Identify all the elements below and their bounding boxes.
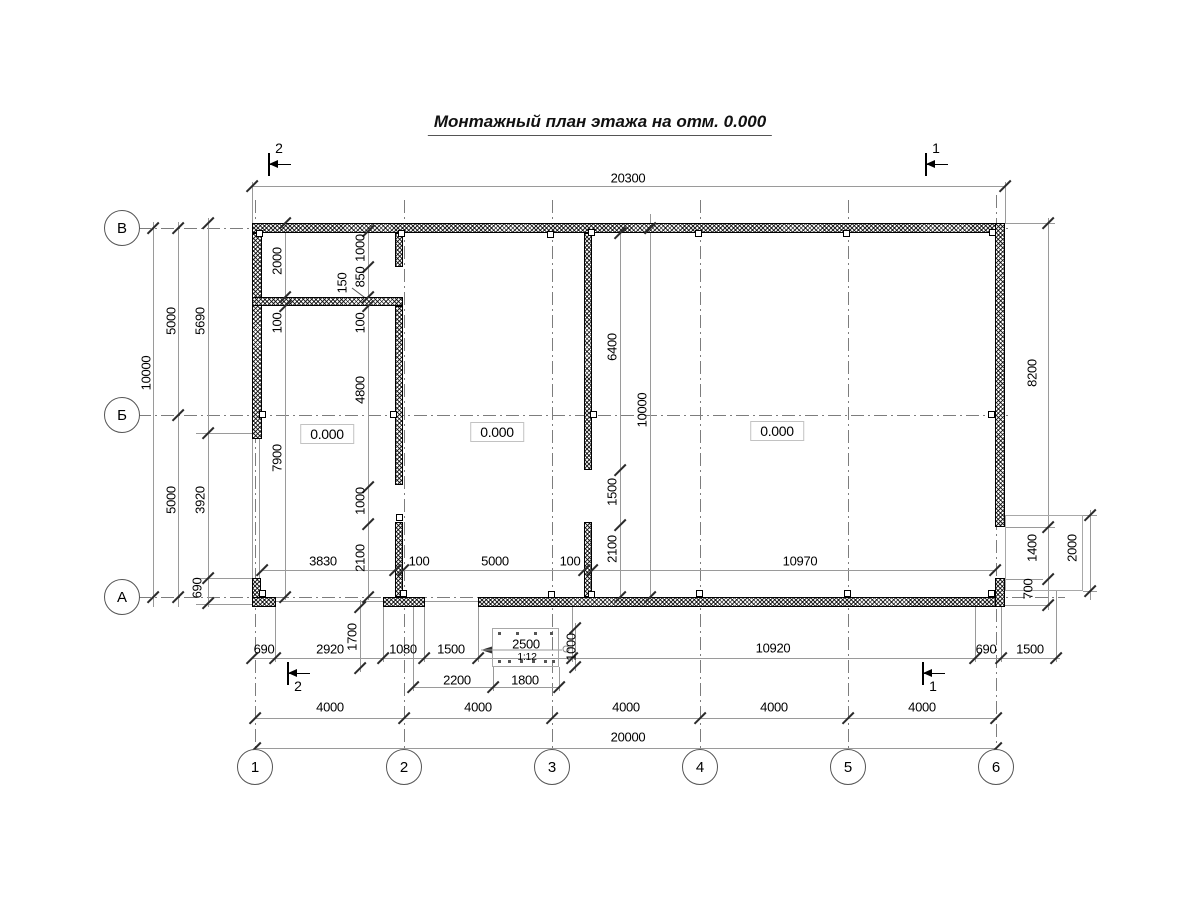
dimension-line: [1005, 182, 1006, 223]
dimension-label: 1000: [565, 633, 578, 661]
ramp-dot: [498, 632, 501, 635]
dimension-line: [1005, 605, 1050, 606]
floor-plan-canvas: Монтажный план этажа на отм. 0.000 20300…: [0, 0, 1200, 900]
ramp-dot: [550, 632, 553, 635]
wall-segment: [478, 597, 1005, 607]
section-marker-label: 1: [929, 678, 937, 694]
dimension-label: 3920: [194, 486, 207, 514]
dimension-label: 1400: [1026, 534, 1039, 562]
dimension-label: 20000: [611, 731, 646, 744]
dimension-line: [620, 223, 621, 600]
dimension-label: 1:12: [517, 652, 536, 663]
dimension-line: [252, 182, 253, 223]
section-marker-arrow: [288, 669, 297, 677]
section-marker-arrow: [923, 669, 932, 677]
dimension-line: [285, 223, 286, 600]
wall-segment: [395, 306, 403, 485]
dimension-label: 2000: [1066, 534, 1079, 562]
dimension-label: 1500: [1016, 643, 1044, 656]
column-marker: [259, 411, 266, 418]
column-marker: [696, 590, 703, 597]
column-marker: [988, 590, 995, 597]
dimension-label: 690: [976, 643, 997, 656]
dimension-label: 100: [409, 555, 430, 568]
dimension-line: [208, 218, 209, 607]
grid-axis-line: [700, 200, 701, 751]
wall-segment: [252, 597, 276, 607]
dimension-label: 690: [254, 643, 275, 656]
ramp-dot: [534, 632, 537, 635]
dimension-line: [1056, 590, 1057, 662]
wall-segment: [252, 297, 403, 306]
column-marker: [396, 514, 403, 521]
ramp-dot: [544, 660, 547, 663]
dimension-label: 10970: [783, 555, 818, 568]
dimension-label: 4800: [354, 376, 367, 404]
grid-axis-bubble: 1: [237, 749, 273, 785]
column-marker: [843, 230, 850, 237]
dimension-label: 1500: [437, 643, 465, 656]
drawing-title: Монтажный план этажа на отм. 0.000: [428, 112, 772, 136]
dimension-label: 8200: [1026, 359, 1039, 387]
dimension-label: 4000: [908, 701, 936, 714]
dimension-label: 100: [560, 555, 581, 568]
elevation-label: 0.000: [300, 424, 354, 444]
dimension-line: [252, 186, 1005, 187]
column-marker: [547, 231, 554, 238]
dimension-label: 690: [191, 578, 204, 599]
dimension-line: [478, 607, 479, 662]
dimension-label: 1700: [346, 623, 359, 651]
ramp-dot: [498, 660, 501, 663]
grid-axis-bubble: А: [104, 579, 140, 615]
dimension-label: 150: [336, 273, 349, 294]
dimension-line: [360, 600, 361, 672]
dimension-label: 850: [354, 267, 367, 288]
dimension-label: 3830: [309, 555, 337, 568]
dimension-label: 100: [354, 313, 367, 334]
section-marker-arrow: [269, 160, 278, 168]
dimension-line: [275, 607, 276, 662]
dimension-line: [252, 439, 253, 578]
dimension-label: 2500: [512, 638, 540, 651]
wall-segment: [395, 522, 403, 597]
dimension-label: 2100: [354, 544, 367, 572]
column-marker: [695, 230, 702, 237]
dimension-line: [368, 223, 369, 600]
ramp-dot: [516, 632, 519, 635]
dimension-label: 2100: [606, 535, 619, 563]
column-marker: [989, 229, 996, 236]
dimension-line: [1001, 607, 1002, 662]
dimension-label: 6400: [606, 333, 619, 361]
dimension-line: [255, 718, 996, 719]
dimension-label: 1000: [354, 487, 367, 515]
dimension-label: 10000: [636, 393, 649, 428]
wall-segment: [395, 233, 403, 267]
wall-segment: [252, 233, 262, 439]
grid-axis-bubble: 3: [534, 749, 570, 785]
dimension-label: 4000: [464, 701, 492, 714]
elevation-label: 0.000: [750, 421, 804, 441]
dimension-label: 2920: [316, 643, 344, 656]
grid-axis-bubble: Б: [104, 397, 140, 433]
dimension-line: [252, 658, 1060, 659]
dimension-line: [1090, 510, 1091, 600]
wall-segment: [995, 578, 1005, 607]
dimension-label: 1080: [389, 643, 417, 656]
dimension-label: 1500: [606, 478, 619, 506]
column-marker: [259, 590, 266, 597]
dimension-label: 10920: [756, 642, 791, 655]
column-marker: [548, 591, 555, 598]
column-marker: [588, 591, 595, 598]
dimension-label: 2000: [271, 247, 284, 275]
dimension-label: 4000: [316, 701, 344, 714]
grid-axis-bubble: 2: [386, 749, 422, 785]
wall-segment: [995, 223, 1005, 527]
dimension-line: [383, 607, 384, 662]
section-marker-label: 1: [932, 140, 940, 156]
column-marker: [844, 590, 851, 597]
grid-axis-bubble: 6: [978, 749, 1014, 785]
grid-axis-line: [552, 200, 553, 751]
column-marker: [588, 229, 595, 236]
dimension-line: [259, 439, 260, 578]
grid-axis-bubble: 5: [830, 749, 866, 785]
dimension-label: 1000: [354, 234, 367, 262]
grid-axis-bubble: 4: [682, 749, 718, 785]
dimension-label: 1800: [511, 674, 539, 687]
dimension-line: [153, 222, 154, 607]
grid-axis-line: [404, 200, 405, 751]
dimension-line: [262, 570, 995, 571]
column-marker: [256, 230, 263, 237]
column-marker: [398, 230, 405, 237]
wall-segment: [383, 597, 425, 607]
section-marker-label: 2: [294, 678, 302, 694]
dimension-label: 4000: [760, 701, 788, 714]
grid-axis-line: [138, 415, 1008, 416]
ramp-dot: [552, 660, 555, 663]
dimension-label: 5000: [481, 555, 509, 568]
dimension-label: 5000: [165, 307, 178, 335]
dimension-label: 10000: [140, 356, 153, 391]
elevation-label: 0.000: [470, 422, 524, 442]
dimension-label: 20300: [611, 172, 646, 185]
section-marker-label: 2: [275, 140, 283, 156]
column-marker: [390, 411, 397, 418]
dimension-line: [424, 601, 478, 602]
grid-axis-line: [848, 200, 849, 751]
grid-axis-bubble: В: [104, 210, 140, 246]
dimension-label: 5000: [165, 486, 178, 514]
column-marker: [590, 411, 597, 418]
section-marker-arrow: [926, 160, 935, 168]
dimension-label: 100: [271, 313, 284, 334]
dimension-line: [424, 607, 425, 662]
column-marker: [988, 411, 995, 418]
ramp-dot: [508, 660, 511, 663]
dimension-line: [650, 214, 651, 607]
dimension-line: [255, 748, 996, 749]
dimension-label: 700: [1022, 579, 1035, 600]
dimension-label: 2200: [443, 674, 471, 687]
dimension-line: [275, 601, 383, 602]
dimension-label: 4000: [612, 701, 640, 714]
column-marker: [400, 590, 407, 597]
dimension-label: 5690: [194, 307, 207, 335]
wall-segment: [584, 522, 592, 597]
dimension-label: 7900: [271, 444, 284, 472]
wall-segment: [584, 233, 592, 470]
